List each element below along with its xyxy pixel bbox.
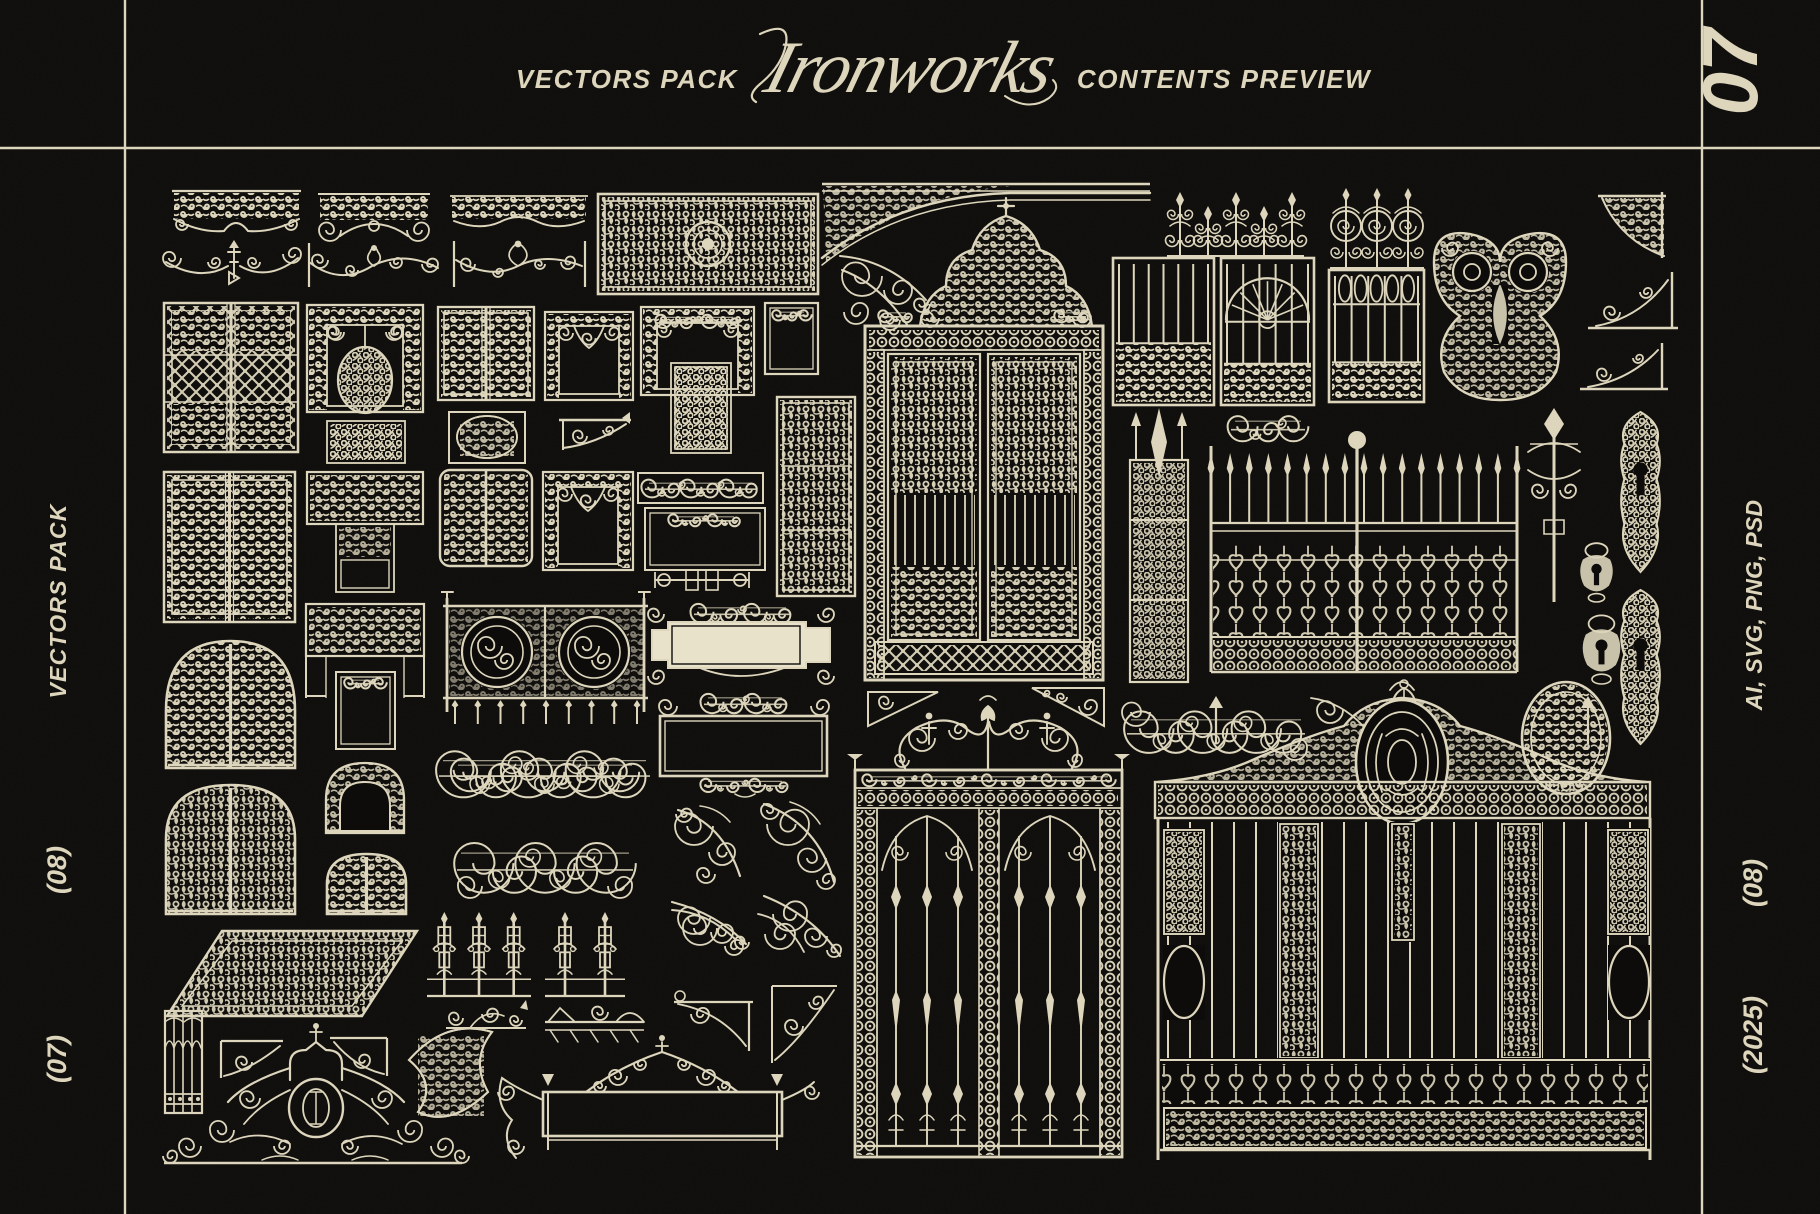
svg-text:VECTORS PACK: VECTORS PACK <box>45 503 71 698</box>
svg-text:Ironworks: Ironworks <box>756 27 1064 108</box>
svg-text:(07): (07) <box>42 1035 72 1083</box>
svg-text:VECTORS PACK: VECTORS PACK <box>516 64 739 94</box>
svg-text:07: 07 <box>1686 25 1774 115</box>
svg-text:(2025): (2025) <box>1738 996 1768 1074</box>
svg-text:(08): (08) <box>1738 859 1768 907</box>
svg-text:AI, SVG, PNG, PSD: AI, SVG, PNG, PSD <box>1741 500 1767 711</box>
svg-text:CONTENTS PREVIEW: CONTENTS PREVIEW <box>1077 64 1372 94</box>
svg-text:(08): (08) <box>42 846 72 894</box>
